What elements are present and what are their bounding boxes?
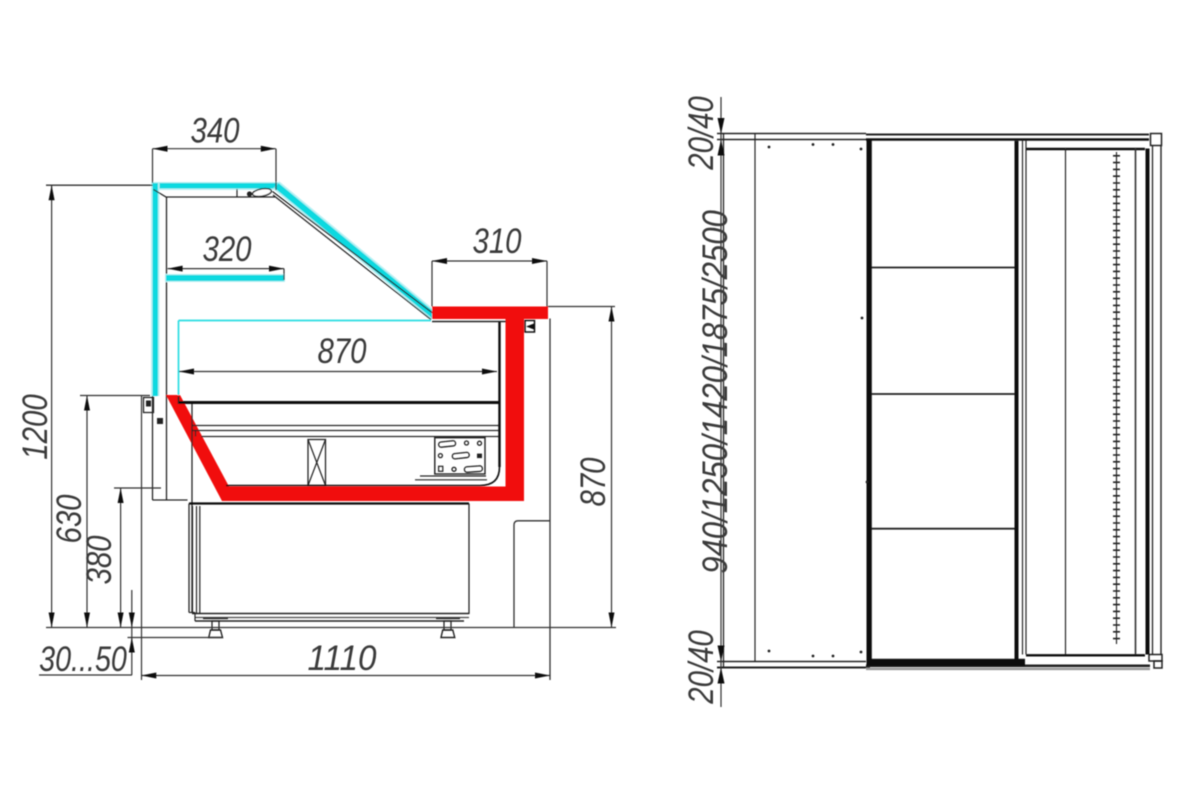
svg-text:20/40: 20/40 — [682, 630, 721, 704]
svg-text:870: 870 — [317, 332, 366, 371]
svg-text:310: 310 — [472, 222, 521, 261]
svg-text:1110: 1110 — [307, 639, 376, 678]
svg-text:380: 380 — [80, 535, 119, 584]
svg-text:30...50: 30...50 — [39, 639, 127, 678]
svg-text:20/40: 20/40 — [682, 96, 721, 170]
svg-text:870: 870 — [574, 457, 613, 506]
svg-text:940/1250/1420/1875/2500: 940/1250/1420/1875/2500 — [696, 210, 735, 574]
svg-text:340: 340 — [190, 111, 239, 150]
svg-text:320: 320 — [202, 230, 251, 269]
svg-text:1200: 1200 — [16, 394, 55, 459]
